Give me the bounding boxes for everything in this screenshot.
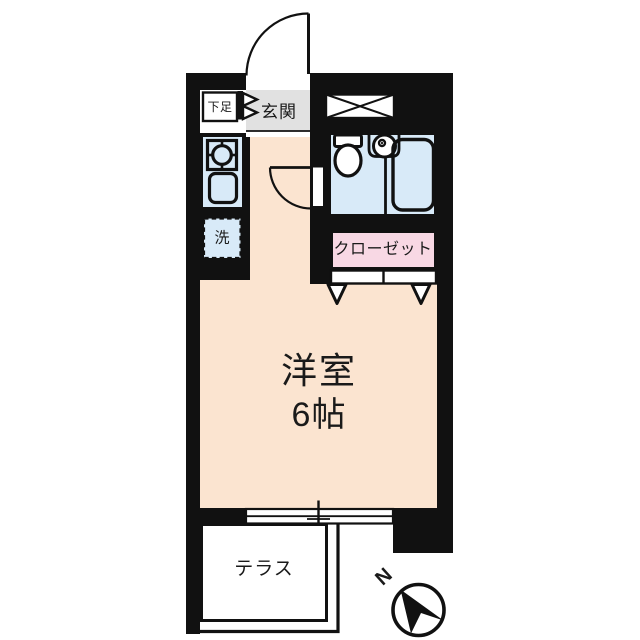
- closet-doors: [331, 271, 436, 284]
- label-main-room-size: 6帖: [281, 393, 357, 438]
- wall-left: [186, 73, 200, 634]
- entrance-threshold: [246, 73, 310, 90]
- wall-bath-left: [310, 132, 330, 284]
- entrance-door-swing-icon: [247, 14, 309, 76]
- label-main-room: 洋室 6帖: [281, 348, 357, 438]
- label-shoe-cabinet: 下足: [207, 101, 232, 113]
- floor-plan-drawing: [0, 0, 640, 640]
- label-entrance: 玄関: [261, 104, 297, 121]
- label-terrace: テラス: [234, 560, 294, 579]
- label-washer: 洗: [214, 231, 229, 246]
- label-main-room-name: 洋室: [281, 348, 357, 393]
- floor-plan-page: 下足 玄関 洗 クローゼット 洋室 6帖 テラス N: [0, 0, 640, 640]
- pipe-space-icon: [326, 95, 394, 119]
- wall-right: [437, 73, 453, 553]
- wall-bath-closet-divider: [310, 215, 437, 230]
- wall-bottom-right-block: [393, 508, 453, 553]
- toilet-icon: [335, 135, 362, 176]
- label-closet: クローゼット: [333, 242, 432, 258]
- bathroom-unit: [330, 133, 436, 216]
- kitchen-counter: [202, 136, 244, 209]
- wall-top: [186, 73, 453, 90]
- compass-icon: [393, 585, 444, 636]
